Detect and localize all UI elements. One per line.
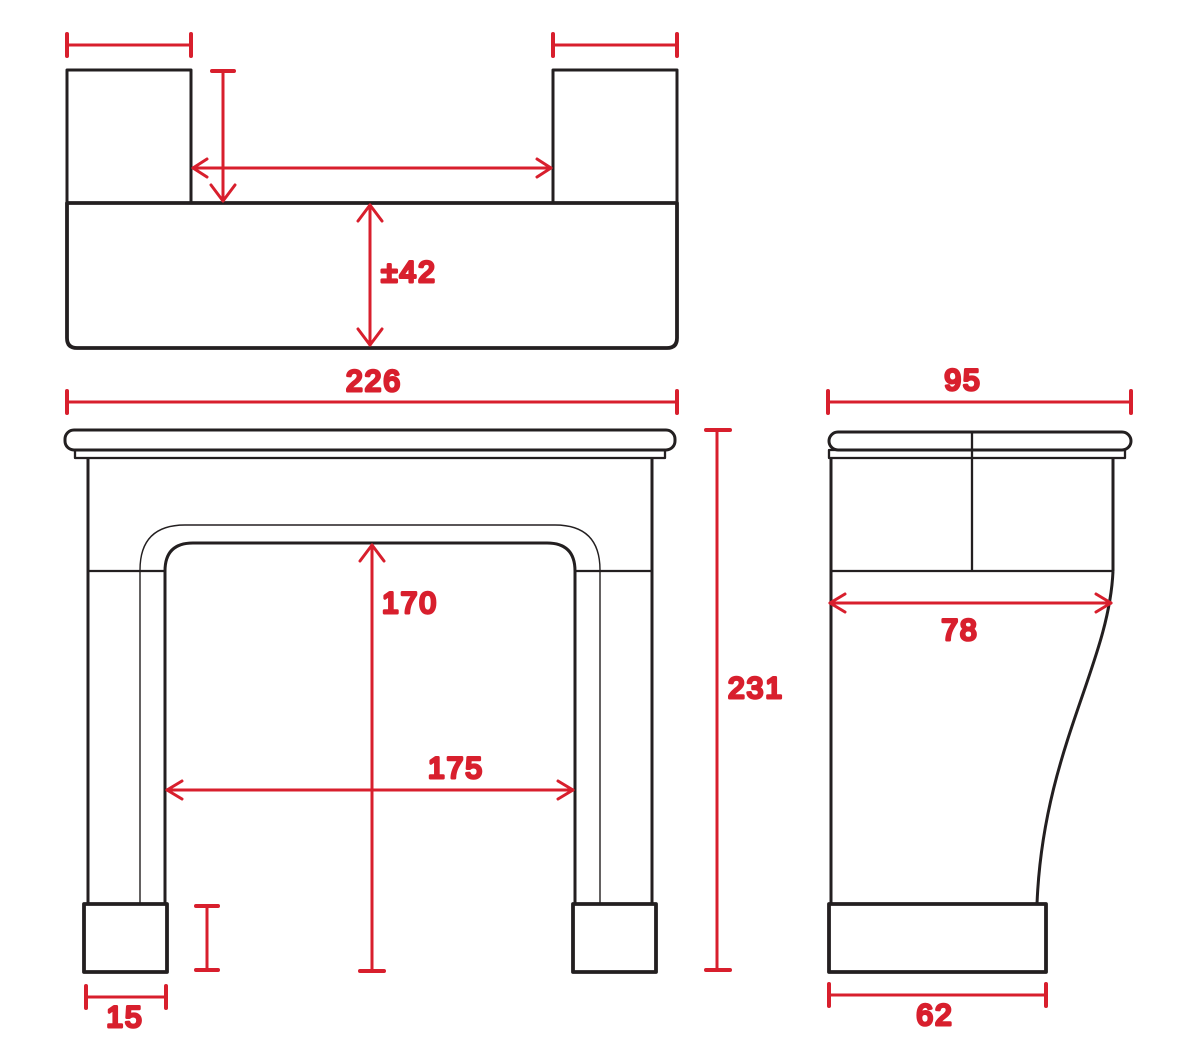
drawing-canvas: ±42 226 231 <box>0 0 1200 1050</box>
side-body-depth-label: 78 <box>941 614 978 647</box>
front-overall-width-label: 226 <box>346 365 402 398</box>
front-overall-height-label: 231 <box>728 672 784 705</box>
plan-shelf-depth-label: ±42 <box>381 256 437 289</box>
front-plinth-width-label: 15 <box>106 1001 143 1034</box>
side-plinth-depth-label: 62 <box>916 999 953 1032</box>
technical-drawing: ±42 226 231 <box>0 0 1200 1050</box>
side-overall-depth-label: 95 <box>944 364 981 397</box>
front-opening-height-label: 170 <box>382 587 438 620</box>
front-opening-width-label: 175 <box>428 752 484 785</box>
